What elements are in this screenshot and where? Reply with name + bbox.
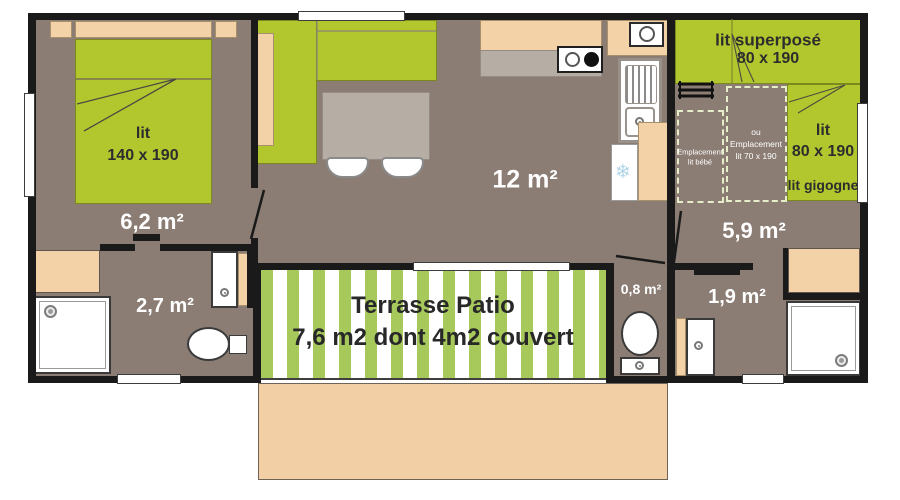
double-bed	[75, 39, 212, 204]
single-bed-size: 80 x 190	[792, 144, 854, 160]
terrace-title: Terrasse Patio	[351, 294, 515, 318]
wardrobe-wall-bottom	[783, 293, 868, 300]
wall-bedroom-bathroom	[160, 244, 253, 251]
window-icon	[24, 93, 35, 197]
stove-burner-icon	[565, 52, 580, 67]
toilet-button-icon	[635, 361, 644, 370]
alt-spot-label: ou	[751, 128, 760, 137]
nightstand	[215, 21, 237, 38]
alt-spot-label: Emplacement	[730, 140, 782, 149]
window-icon	[857, 103, 868, 203]
terrace-wall-top	[253, 263, 415, 270]
toilet-icon	[187, 327, 230, 361]
floor-plan: ❄	[0, 0, 900, 500]
stove-burner-icon	[584, 52, 599, 67]
window-icon	[742, 374, 784, 384]
sliding-door	[413, 262, 570, 271]
washbasin-vanity	[211, 251, 238, 308]
dining-table	[322, 92, 430, 160]
terrace-subtitle: 7,6 m2 dont 4m2 couvert	[292, 326, 573, 350]
wardrobe	[35, 250, 100, 293]
door-leaf	[133, 234, 160, 241]
room-area-label: 2,7 m²	[136, 296, 194, 316]
wardrobe-wall-left	[783, 248, 788, 294]
basin-tap-icon	[220, 288, 229, 297]
shower-tray	[786, 301, 861, 376]
baby-spot-label: Emplacement	[677, 148, 723, 156]
shower-drain-icon	[44, 305, 57, 318]
room-area-label: 1,9 m²	[708, 287, 766, 307]
room-area-label: 6,2 m²	[120, 211, 184, 233]
kitchen-tall-cabinet	[638, 122, 668, 201]
sofa-cushion	[257, 33, 274, 146]
shower-drain-icon	[835, 354, 848, 367]
window-icon	[117, 374, 181, 384]
basin-tap-icon	[694, 341, 703, 350]
bed-label: lit	[136, 126, 150, 142]
toilet-tank	[229, 335, 247, 354]
sink-drainer	[625, 65, 657, 104]
trundle-bed-note: lit gigogne	[788, 178, 859, 192]
room-area-label: 0,8 m²	[621, 282, 661, 296]
wall-bedroom-bathroom	[100, 244, 135, 251]
baby-spot-label: lit bébé	[688, 158, 712, 166]
bunk-bed-label: lit superposé	[715, 32, 821, 49]
wardrobe	[788, 248, 860, 293]
snowflake-icon: ❄	[615, 163, 631, 182]
room-area-label: 5,9 m²	[722, 220, 786, 242]
terrace-wall-right	[606, 263, 614, 383]
wall-bottom	[783, 376, 868, 383]
nightstand	[50, 21, 72, 38]
alt-spot-label: lit 70 x 190	[735, 152, 776, 161]
bunk-bed-size: 80 x 190	[737, 51, 799, 67]
wall-central-divider	[667, 20, 675, 376]
sink-bowl-icon	[639, 26, 655, 42]
outdoor-deck	[258, 383, 668, 480]
bed-headboard	[75, 21, 212, 38]
wall-bottom	[180, 376, 258, 383]
toilet-icon	[621, 311, 659, 356]
bed-size-label: 140 x 190	[107, 148, 178, 164]
wall-bottom	[28, 376, 120, 383]
wall-bedroom-living	[251, 20, 258, 188]
room-area-label: 12 m²	[492, 168, 557, 193]
door-leaf	[694, 267, 740, 275]
wall-left	[28, 13, 36, 383]
wall-top	[28, 13, 868, 20]
wall-bottom	[607, 376, 744, 383]
window-icon	[298, 11, 405, 21]
terrace-wall-left	[253, 263, 261, 383]
basin-side-panel	[676, 318, 686, 376]
single-bed-label: lit	[816, 123, 830, 139]
